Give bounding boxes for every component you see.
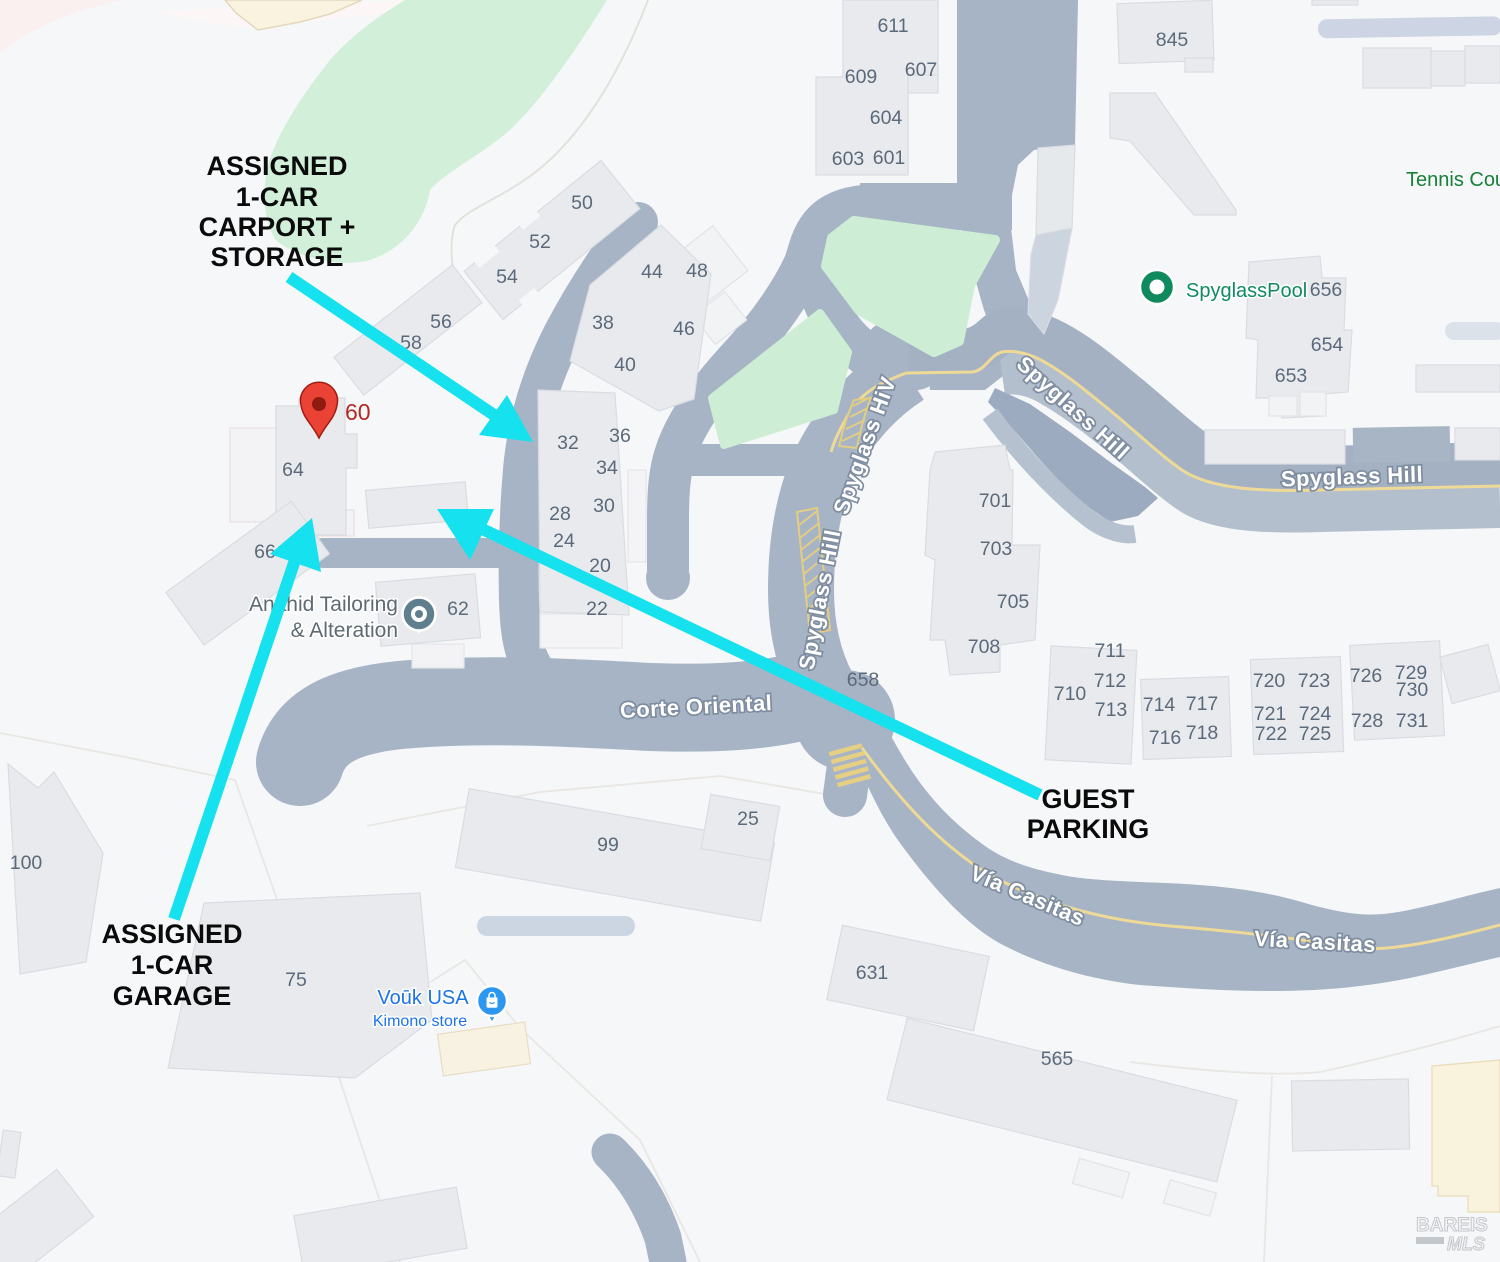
svg-text:20: 20 (589, 555, 611, 577)
svg-text:GARAGE: GARAGE (113, 981, 232, 1011)
svg-text:722: 722 (1255, 723, 1288, 745)
svg-text:36: 36 (609, 425, 631, 447)
svg-text:25: 25 (737, 808, 759, 830)
svg-text:ASSIGNED: ASSIGNED (101, 919, 242, 949)
svg-text:711: 711 (1094, 640, 1125, 662)
svg-text:609: 609 (845, 66, 878, 88)
svg-text:712: 712 (1094, 670, 1127, 692)
svg-text:34: 34 (596, 457, 618, 479)
svg-text:Spyglass Hill: Spyglass Hill (1281, 462, 1424, 492)
svg-text:658: 658 (847, 669, 880, 691)
svg-text:22: 22 (586, 598, 608, 620)
svg-text:603: 603 (832, 148, 865, 170)
svg-text:Kimono store: Kimono store (373, 1013, 467, 1030)
svg-text:Tennis Cou: Tennis Cou (1406, 169, 1500, 191)
svg-text:32: 32 (557, 432, 579, 454)
svg-text:718: 718 (1186, 722, 1219, 744)
svg-text:721: 721 (1254, 703, 1287, 725)
svg-text:631: 631 (856, 962, 889, 984)
svg-text:24: 24 (553, 530, 575, 552)
svg-text:656: 656 (1310, 279, 1343, 301)
svg-text:845: 845 (1156, 29, 1189, 51)
svg-text:75: 75 (285, 969, 307, 991)
svg-text:PARKING: PARKING (1027, 814, 1150, 844)
svg-text:100: 100 (10, 852, 43, 874)
svg-text:724: 724 (1299, 703, 1332, 725)
svg-text:654: 654 (1311, 334, 1344, 356)
svg-text:728: 728 (1351, 710, 1384, 732)
svg-text:713: 713 (1095, 699, 1128, 721)
svg-text:601: 601 (873, 147, 906, 169)
svg-text:62: 62 (447, 598, 469, 620)
svg-text:604: 604 (870, 107, 903, 129)
svg-text:60: 60 (345, 399, 371, 425)
svg-text:1-CAR: 1-CAR (131, 950, 214, 980)
svg-text:607: 607 (905, 59, 938, 81)
svg-text:54: 54 (496, 266, 518, 288)
svg-text:1-CAR: 1-CAR (236, 182, 319, 212)
svg-text:Voūk USA: Voūk USA (377, 987, 469, 1009)
svg-text:723: 723 (1298, 670, 1331, 692)
svg-text:714: 714 (1143, 694, 1176, 716)
svg-text:565: 565 (1041, 1048, 1074, 1070)
svg-text:56: 56 (430, 311, 452, 333)
svg-text:52: 52 (529, 231, 551, 253)
svg-text:717: 717 (1186, 693, 1219, 715)
svg-text:30: 30 (593, 495, 615, 517)
svg-text:CARPORT +: CARPORT + (199, 212, 356, 242)
svg-text:611: 611 (877, 15, 908, 37)
svg-text:731: 731 (1396, 710, 1429, 732)
svg-text:48: 48 (686, 260, 708, 282)
svg-text:99: 99 (597, 834, 619, 856)
svg-text:STORAGE: STORAGE (210, 242, 343, 272)
svg-text:705: 705 (997, 591, 1030, 613)
svg-text:38: 38 (592, 312, 614, 334)
svg-text:725: 725 (1299, 723, 1332, 745)
svg-text:SpyglassPool: SpyglassPool (1186, 280, 1307, 302)
svg-text:46: 46 (673, 318, 695, 340)
svg-text:MLS: MLS (1447, 1234, 1485, 1254)
svg-text:50: 50 (571, 192, 593, 214)
svg-text:64: 64 (282, 459, 304, 481)
svg-text:ASSIGNED: ASSIGNED (206, 151, 347, 181)
svg-text:& Alteration: & Alteration (291, 619, 398, 642)
svg-text:708: 708 (968, 636, 1001, 658)
svg-text:710: 710 (1054, 683, 1087, 705)
svg-text:40: 40 (614, 354, 636, 376)
svg-text:44: 44 (641, 261, 663, 283)
svg-text:653: 653 (1275, 365, 1308, 387)
svg-text:716: 716 (1149, 727, 1182, 749)
svg-text:701: 701 (979, 490, 1012, 512)
svg-text:703: 703 (980, 538, 1013, 560)
svg-text:BAREIS: BAREIS (1416, 1215, 1488, 1236)
svg-text:720: 720 (1253, 670, 1286, 692)
svg-text:730: 730 (1396, 679, 1429, 701)
svg-text:28: 28 (549, 503, 571, 525)
svg-text:GUEST: GUEST (1041, 784, 1135, 814)
svg-text:726: 726 (1350, 665, 1383, 687)
